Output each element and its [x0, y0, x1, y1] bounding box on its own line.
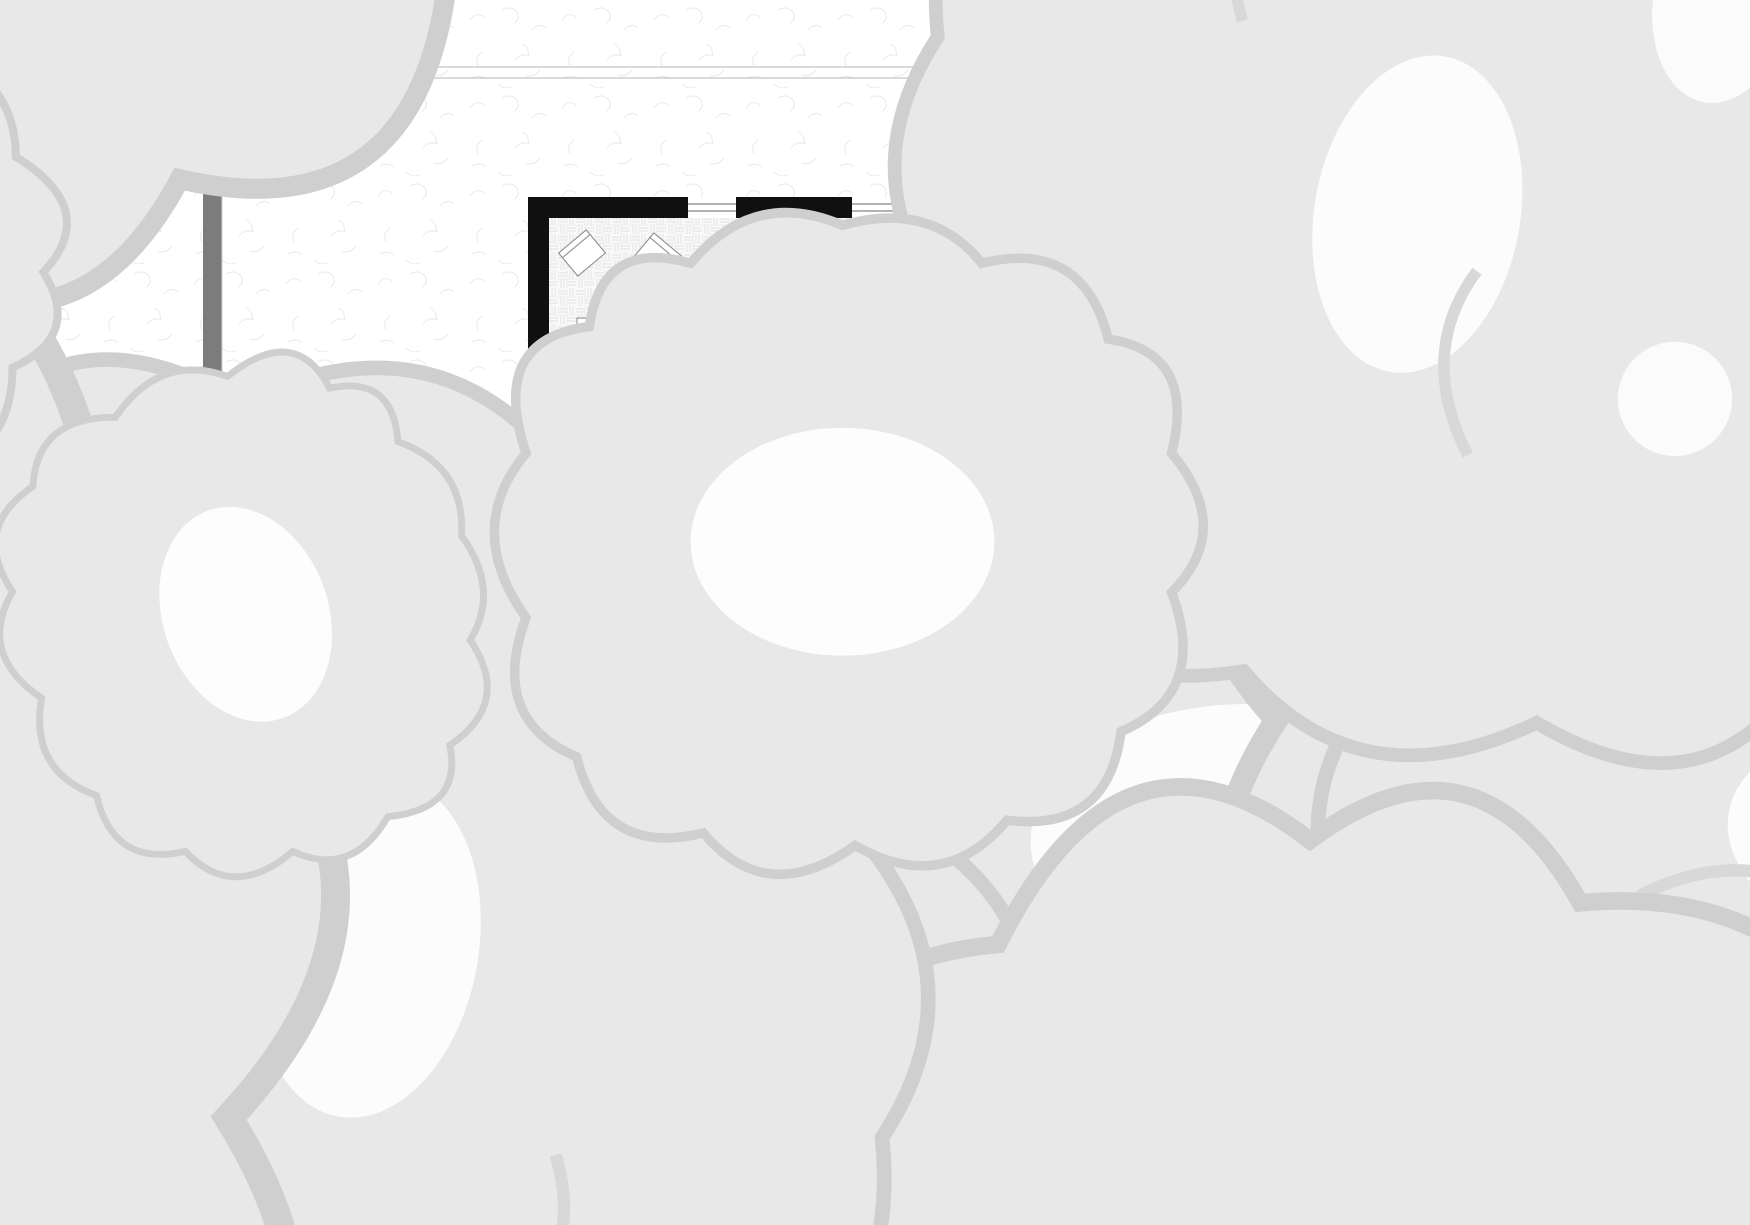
- bush: [494, 213, 1203, 875]
- site-plan-page: N: [0, 0, 1750, 1225]
- site-plan-canvas: N: [0, 0, 1750, 1225]
- window-north-1: [688, 197, 736, 218]
